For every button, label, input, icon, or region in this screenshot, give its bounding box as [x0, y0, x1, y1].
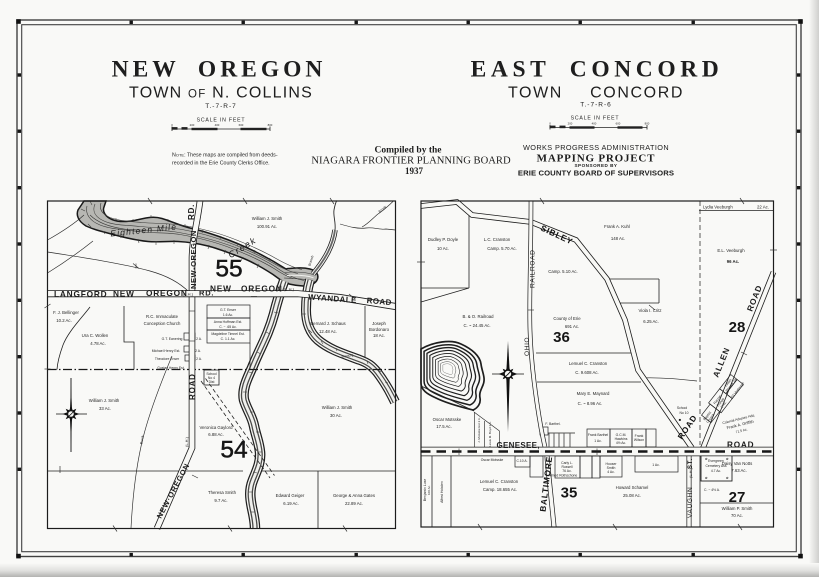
svg-text:School: School	[677, 406, 688, 410]
svg-text:Frank Barthel: Frank Barthel	[588, 433, 609, 437]
svg-text:100 Ac.: 100 Ac.	[427, 485, 431, 495]
svg-text:200: 200	[568, 121, 573, 125]
svg-text:Bernard J. Schaus: Bernard J. Schaus	[310, 321, 345, 326]
svg-text:800: 800	[268, 123, 273, 127]
svg-text:35: 35	[561, 485, 578, 502]
svg-text:C. ~ 24.45 Ac.: C. ~ 24.45 Ac.	[463, 323, 490, 328]
svg-text:Dist: Dist	[209, 380, 215, 384]
svg-text:17.5 Ac.: 17.5 Ac.	[436, 424, 452, 429]
svg-text:Gustav Henry Est.: Gustav Henry Est.	[157, 366, 185, 370]
svg-text:Michael Henry Est.: Michael Henry Est.	[152, 349, 181, 353]
svg-text:R.C. Immaculate: R.C. Immaculate	[146, 314, 179, 319]
svg-text:Bordonaro: Bordonaro	[369, 327, 390, 332]
svg-text:Mary E. Maynard: Mary E. Maynard	[577, 391, 610, 396]
svg-text:LANGFORD: LANGFORD	[54, 289, 107, 299]
svg-text:No 10: No 10	[679, 411, 688, 415]
svg-text:96 Ac.: 96 Ac.	[727, 259, 740, 264]
svg-text:7.63 Ac.: 7.63 Ac.	[731, 468, 747, 473]
svg-text:NEW: NEW	[210, 284, 232, 294]
svg-text:2 A.: 2 A.	[196, 357, 202, 361]
svg-text:Viola I. Critz: Viola I. Critz	[638, 308, 661, 313]
svg-text:C. 9.608 Ac.: C. 9.608 Ac.	[575, 370, 598, 375]
svg-text:4½ Ac.: 4½ Ac.	[616, 441, 626, 445]
svg-text:G.T. Eanering: G.T. Eanering	[162, 337, 183, 341]
svg-text:WORKS PROGRESS ADMINISTRATION: WORKS PROGRESS ADMINISTRATION	[523, 143, 669, 152]
svg-text:(L.H.): (L.H.)	[284, 287, 295, 292]
svg-text:76 Ac.: 76 Ac.	[562, 469, 571, 473]
svg-text:Theresa Smith: Theresa Smith	[208, 490, 237, 495]
svg-text:Oscar Motsske: Oscar Motsske	[481, 458, 504, 462]
svg-text:T.-7-R-7: T.-7-R-7	[205, 103, 236, 110]
svg-text:2 A.: 2 A.	[195, 349, 201, 353]
svg-text:Wilson: Wilson	[634, 438, 644, 442]
svg-text:Ura C. Wollen: Ura C. Wollen	[82, 333, 109, 338]
svg-text:10 Ac.: 10 Ac.	[437, 246, 449, 251]
svg-text:NEW: NEW	[113, 289, 135, 299]
svg-text:NEW OREGON: NEW OREGON	[112, 57, 327, 83]
svg-text:County of Erie: County of Erie	[553, 316, 581, 321]
svg-text:VAUGHN: VAUGHN	[687, 487, 694, 518]
svg-text:William J. Smith: William J. Smith	[252, 216, 283, 221]
svg-text:Lewis M. Boyd 2 A.: Lewis M. Boyd 2 A.	[488, 421, 492, 447]
svg-text:Lydia Veeburgh: Lydia Veeburgh	[703, 205, 733, 210]
svg-text:RD.: RD.	[187, 204, 196, 220]
svg-text:C. ~ .65 Ac.: C. ~ .65 Ac.	[219, 325, 237, 329]
svg-text:Lemuel C. Cranston: Lemuel C. Cranston	[569, 361, 608, 366]
svg-text:C. ~ 8.96 Ac.: C. ~ 8.96 Ac.	[578, 401, 603, 406]
svg-text:2 A.: 2 A.	[196, 337, 202, 341]
svg-text:6.88 Ac.: 6.88 Ac.	[208, 432, 224, 437]
svg-text:NEW-OREGON: NEW-OREGON	[189, 230, 198, 289]
svg-text:6.25 Ac.: 6.25 Ac.	[643, 319, 659, 324]
svg-text:William J. Smith: William J. Smith	[89, 398, 120, 403]
svg-text:✿: ✿	[726, 476, 729, 480]
svg-text:Alfred Hobden: Alfred Hobden	[440, 481, 444, 503]
svg-text:Theodore Enser: Theodore Enser	[155, 357, 180, 361]
svg-text:OHIO: OHIO	[524, 337, 531, 356]
svg-text:28: 28	[729, 319, 746, 336]
svg-text:F. Barthel.: F. Barthel.	[545, 422, 560, 426]
svg-text:33 Ac.: 33 Ac.	[99, 406, 111, 411]
svg-text:TOWN OF N. COLLINS: TOWN OF N. COLLINS	[129, 85, 313, 102]
svg-text:Conception Church: Conception Church	[144, 321, 181, 326]
svg-text:F. J. Bellinger: F. J. Bellinger	[53, 310, 79, 315]
svg-text:4.7 Ac.: 4.7 Ac.	[711, 469, 721, 473]
svg-text:OREGON: OREGON	[146, 288, 188, 298]
svg-text:Veronica Gaylord: Veronica Gaylord	[200, 425, 234, 430]
svg-text:recorded in the Erie County Cl: recorded in the Erie County Clerks Offic…	[172, 161, 270, 167]
svg-text:100.91 Ac.: 100.91 Ac.	[257, 224, 277, 229]
svg-text:J. Motsske Est 2 A.: J. Motsske Est 2 A.	[477, 417, 481, 443]
svg-text:600: 600	[616, 121, 621, 125]
svg-text:36: 36	[553, 329, 570, 346]
svg-text:T.-7-R-6: T.-7-R-6	[580, 102, 611, 109]
svg-text:200: 200	[190, 123, 195, 127]
svg-text:6.19 Ac.: 6.19 Ac.	[283, 501, 299, 506]
svg-text:691 Ac.: 691 Ac.	[565, 324, 579, 329]
svg-text:1937: 1937	[405, 166, 424, 176]
svg-text:25.08 Ac.: 25.08 Ac.	[623, 493, 641, 498]
svg-text:William P. Smith: William P. Smith	[722, 506, 753, 511]
svg-text:RAILROAD: RAILROAD	[530, 249, 537, 288]
svg-text:Evergreen: Evergreen	[708, 459, 724, 463]
svg-text:10.2 Ac.: 10.2 Ac.	[56, 318, 72, 323]
svg-text:9.7 Ac.: 9.7 Ac.	[214, 498, 227, 503]
svg-text:400: 400	[215, 123, 220, 127]
svg-text:ST.: ST.	[688, 458, 694, 469]
svg-text:22 Ac.: 22 Ac.	[757, 205, 769, 210]
svg-text:22.89 Ac.: 22.89 Ac.	[345, 501, 363, 506]
svg-text:30 Ac.: 30 Ac.	[330, 413, 342, 418]
svg-text:4.78 Ac.: 4.78 Ac.	[90, 341, 106, 346]
svg-text:Joseph: Joseph	[372, 321, 386, 326]
svg-text:Camp. 5.10 Ac.: Camp. 5.10 Ac.	[548, 269, 577, 274]
svg-text:55: 55	[215, 256, 242, 283]
svg-text:William J. Smith: William J. Smith	[322, 405, 353, 410]
svg-text:SPONSORED BY: SPONSORED BY	[574, 163, 617, 168]
svg-text:ERIE COUNTY BOARD OF SUPERVISO: ERIE COUNTY BOARD OF SUPERVISORS	[518, 169, 674, 178]
svg-text:EAST CONCORD: EAST CONCORD	[471, 57, 724, 83]
svg-text:ROAD: ROAD	[727, 441, 754, 450]
svg-text:18 Ac.: 18 Ac.	[373, 333, 385, 338]
svg-text:Camp. 5.70 Ac.: Camp. 5.70 Ac.	[487, 246, 516, 251]
svg-text:G.T. Enser: G.T. Enser	[220, 308, 237, 312]
svg-text:L.C. Cranston: L.C. Cranston	[484, 237, 511, 242]
svg-text:1.6 Ac.: 1.6 Ac.	[223, 313, 233, 317]
svg-text:Almed Rothschone: Almed Rothschone	[549, 474, 578, 478]
svg-text:George & Anna Gates: George & Anna Gates	[333, 493, 375, 498]
svg-text:✿: ✿	[705, 476, 708, 480]
svg-text:70 Ac.: 70 Ac.	[731, 513, 743, 518]
svg-text:Howard Schamel: Howard Schamel	[616, 485, 649, 490]
svg-text:Frank A. Kuhl: Frank A. Kuhl	[604, 224, 630, 229]
svg-text:NIAGARA FRONTIER PLANNING BOAR: NIAGARA FRONTIER PLANNING BOARD	[311, 156, 511, 167]
svg-text:C. 1.1 Ac.: C. 1.1 Ac.	[221, 337, 236, 341]
svg-text:800: 800	[645, 121, 650, 125]
svg-text:1 Ac.: 1 Ac.	[652, 463, 660, 467]
svg-text:27: 27	[729, 489, 746, 506]
svg-text:54: 54	[220, 437, 247, 464]
svg-text:1 Ac.: 1 Ac.	[594, 439, 602, 443]
svg-text:(L.H.): (L.H.)	[184, 436, 189, 447]
svg-text:Anna Hoffman Est.: Anna Hoffman Est.	[214, 320, 242, 324]
svg-text:12.48 Ac.: 12.48 Ac.	[319, 329, 337, 334]
svg-text:GENESEE,: GENESEE,	[497, 441, 540, 450]
svg-text:ROAD: ROAD	[188, 373, 197, 400]
svg-text:4 Ac.: 4 Ac.	[607, 470, 615, 474]
svg-text:OREGON: OREGON	[241, 284, 283, 294]
svg-text:E.L. Veeburgh: E.L. Veeburgh	[717, 248, 745, 253]
svg-text:Oscar Motsske: Oscar Motsske	[433, 417, 462, 422]
svg-text:TOWN CONCORD: TOWN CONCORD	[508, 85, 684, 102]
svg-text:Camp. 18.655 Ac.: Camp. 18.655 Ac.	[483, 487, 517, 492]
svg-text:C.10 A.: C.10 A.	[516, 459, 527, 463]
svg-text:Dudley P. Doyle: Dudley P. Doyle	[428, 237, 459, 242]
svg-text:C. ~ 4½ A.: C. ~ 4½ A.	[704, 488, 720, 492]
svg-text:(L.H.): (L.H.)	[183, 292, 194, 297]
svg-text:Lemuel C. Cranston: Lemuel C. Cranston	[480, 479, 519, 484]
svg-text:B. & O. Railroad: B. & O. Railroad	[462, 314, 494, 319]
svg-text:400: 400	[592, 121, 597, 125]
svg-text:Compiled by the: Compiled by the	[374, 146, 441, 156]
svg-text:Magdeline Timnel Est.: Magdeline Timnel Est.	[211, 332, 244, 336]
svg-text:600: 600	[239, 123, 244, 127]
svg-text:Cemetery Ass: Cemetery Ass	[705, 464, 726, 468]
svg-text:Edward Geiger: Edward Geiger	[276, 493, 305, 498]
svg-text:148 Ac.: 148 Ac.	[611, 236, 625, 241]
svg-text:NOTE: These maps are compiled: NOTE: These maps are compiled from deeds…	[172, 153, 278, 159]
